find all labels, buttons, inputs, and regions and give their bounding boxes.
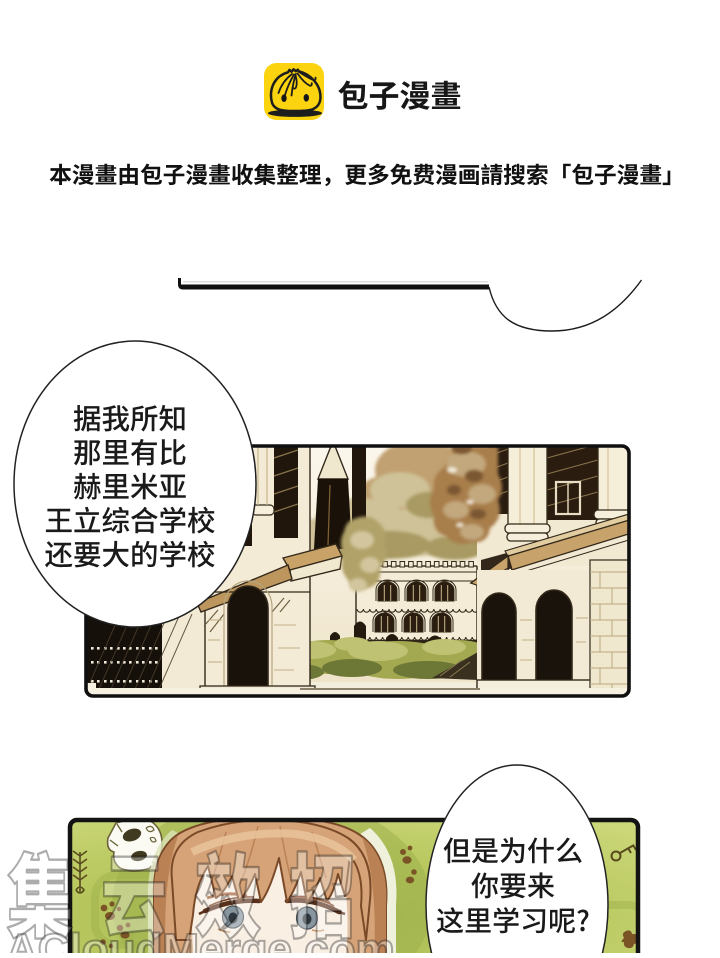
svg-text:ACloudMerge.com: ACloudMerge.com — [6, 925, 395, 953]
